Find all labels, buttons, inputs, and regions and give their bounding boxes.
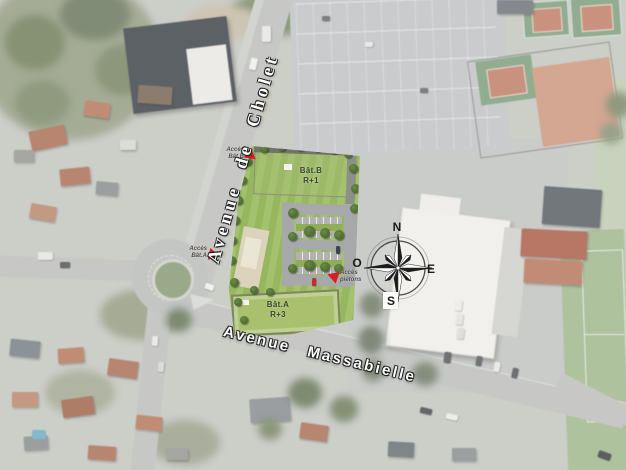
house: [107, 358, 139, 379]
tree: [334, 230, 344, 240]
house: [135, 415, 162, 432]
car: [455, 314, 463, 326]
gray-roof-building: [497, 0, 533, 14]
tree: [358, 326, 384, 354]
label-bat-b: Bât.B R+1: [288, 166, 334, 185]
house: [388, 441, 415, 457]
shed: [120, 140, 136, 150]
tree: [288, 264, 297, 273]
tree: [606, 92, 626, 118]
house: [88, 445, 117, 461]
tree: [266, 288, 274, 296]
bat-a-name: Bât.A: [255, 300, 301, 310]
car-red: [312, 278, 316, 286]
rooflight: [242, 300, 249, 305]
car: [419, 407, 432, 416]
tennis-court-inner: [531, 7, 563, 33]
swimming-pool: [32, 430, 46, 439]
house: [59, 166, 91, 186]
car: [262, 26, 271, 42]
compass-north-label: N: [390, 220, 404, 234]
house: [166, 448, 188, 460]
tree: [350, 204, 359, 213]
field-line: [584, 334, 624, 335]
tree: [288, 208, 298, 218]
roundabout-island: [152, 259, 194, 301]
car: [454, 300, 462, 312]
tree: [166, 308, 192, 332]
label-bat-a: Bât.A R+3: [255, 300, 301, 319]
white-roof-section: [186, 44, 233, 104]
car: [456, 328, 464, 340]
house: [61, 396, 95, 418]
tennis-court-inner: [580, 4, 614, 32]
truck: [38, 252, 53, 260]
access-a-line1: Accès: [183, 246, 207, 253]
car: [443, 352, 451, 364]
red-roof-building: [523, 258, 582, 285]
house: [95, 181, 118, 196]
tree: [234, 298, 242, 306]
tree: [250, 286, 258, 294]
house: [14, 150, 34, 162]
compass-east-label: E: [424, 262, 438, 276]
house: [137, 85, 172, 105]
house: [12, 392, 38, 407]
bat-b-level: R+1: [288, 176, 334, 186]
red-roof-building: [520, 228, 587, 259]
aerial-site-plan: Bât.B R+1 Bât.A R+3 Accès Bât.B Accès Bâ…: [0, 0, 626, 470]
house: [452, 448, 476, 461]
tree: [349, 164, 358, 173]
compass-south-label: S: [384, 294, 398, 308]
tree: [288, 378, 322, 408]
west-road: [0, 255, 143, 281]
house: [58, 347, 85, 364]
house: [29, 203, 57, 222]
tree: [304, 226, 315, 237]
compass-west-label: O: [350, 256, 364, 270]
tree: [5, 15, 65, 70]
car: [60, 262, 70, 268]
tree: [15, 80, 70, 125]
car: [420, 88, 428, 93]
tree: [304, 260, 315, 271]
tennis-court-inner: [486, 64, 528, 98]
bat-b-name: Bât.B: [288, 166, 334, 176]
tree: [288, 232, 297, 241]
tree: [320, 228, 330, 238]
house: [299, 422, 329, 442]
car: [152, 336, 159, 346]
tree: [600, 122, 622, 144]
car: [322, 16, 330, 21]
car: [336, 246, 340, 254]
bat-a-level: R+3: [255, 310, 301, 320]
tree: [230, 278, 239, 287]
car: [365, 42, 373, 47]
dark-building: [542, 186, 603, 228]
tree: [258, 418, 282, 440]
tree: [240, 316, 248, 324]
house: [9, 338, 41, 358]
tree: [330, 396, 358, 422]
car: [445, 413, 458, 422]
car: [158, 362, 165, 372]
